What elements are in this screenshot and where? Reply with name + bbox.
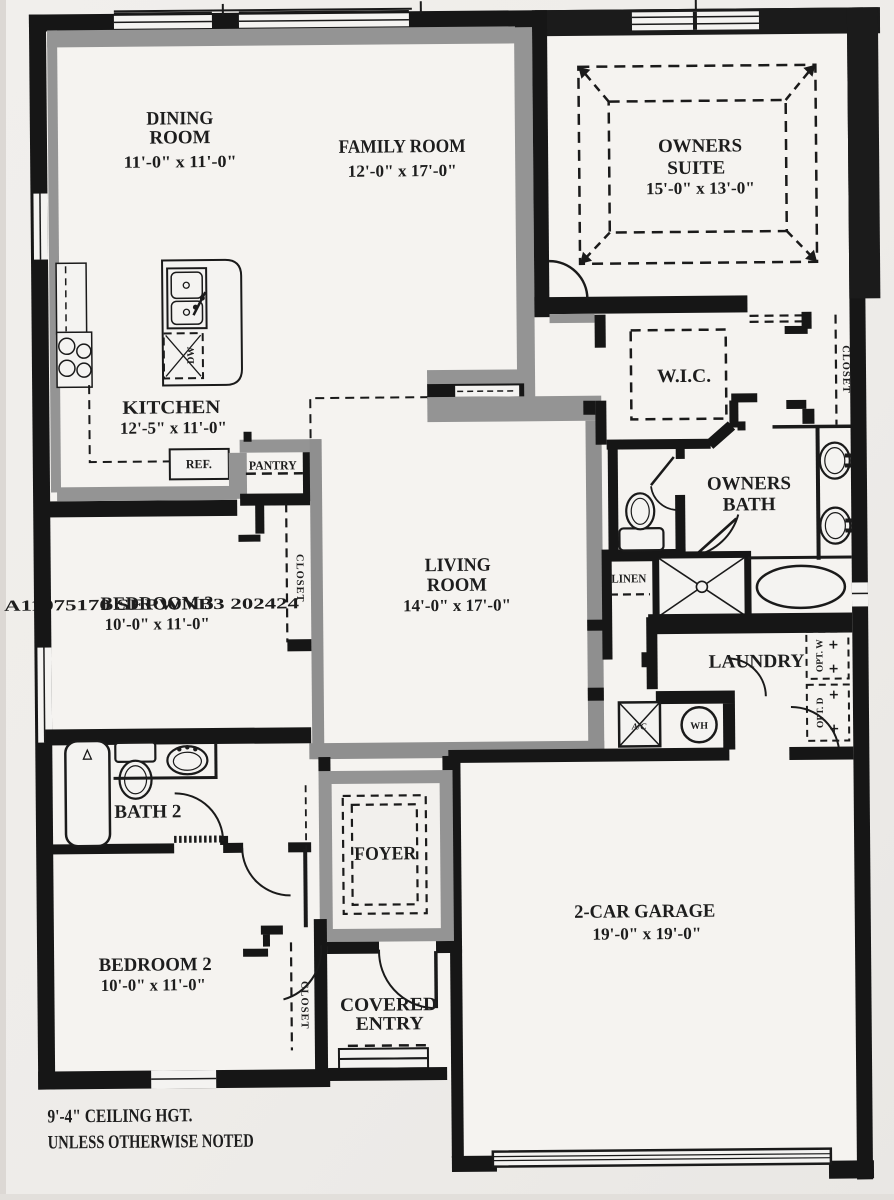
- svg-text:CLOSET: CLOSET: [294, 554, 305, 603]
- svg-text:SUITE: SUITE: [667, 158, 725, 180]
- svg-text:12'-0" x 17'-0": 12'-0" x 17'-0": [348, 161, 457, 181]
- svg-text:19'-0" x 19'-0": 19'-0" x 19'-0": [592, 924, 701, 944]
- svg-text:2-CAR GARAGE: 2-CAR GARAGE: [574, 901, 715, 923]
- svg-text:REF.: REF.: [186, 457, 212, 471]
- svg-text:W.I.C.: W.I.C.: [657, 366, 711, 387]
- svg-text:LIVING: LIVING: [425, 555, 491, 577]
- svg-text:UNLESS OTHERWISE NOTED: UNLESS OTHERWISE NOTED: [48, 1131, 254, 1154]
- svg-text:PANTRY: PANTRY: [249, 458, 297, 472]
- svg-text:OPT. W: OPT. W: [815, 639, 825, 672]
- svg-text:ROOM: ROOM: [427, 575, 487, 597]
- svg-text:BATH 2: BATH 2: [114, 801, 181, 823]
- svg-text:KITCHEN: KITCHEN: [122, 397, 220, 419]
- svg-text:CLOSET: CLOSET: [840, 345, 851, 394]
- svg-text:FOYER: FOYER: [354, 843, 416, 865]
- svg-text:BATH: BATH: [723, 494, 776, 515]
- svg-text:OPT. D: OPT. D: [816, 697, 826, 728]
- svg-text:CLOSET: CLOSET: [298, 981, 309, 1030]
- svg-text:BEDROOM 3: BEDROOM 3: [100, 593, 213, 615]
- svg-text:BEDROOM 2: BEDROOM 2: [99, 954, 212, 976]
- svg-text:11'-0" x 11'-0": 11'-0" x 11'-0": [124, 152, 237, 172]
- svg-text:A/C: A/C: [631, 721, 648, 731]
- svg-text:LINEN: LINEN: [611, 571, 646, 585]
- svg-text:LAUNDRY: LAUNDRY: [708, 651, 804, 673]
- svg-text:9'-4" CEILING HGT.: 9'-4" CEILING HGT.: [47, 1105, 192, 1127]
- svg-text:ENTRY: ENTRY: [356, 1013, 424, 1035]
- svg-text:12'-5" x 11'-0": 12'-5" x 11'-0": [120, 418, 227, 438]
- svg-text:OWNERS: OWNERS: [658, 135, 742, 157]
- svg-text:15'-0" x 13'-0": 15'-0" x 13'-0": [646, 178, 755, 198]
- svg-text:10'-0" x 11'-0": 10'-0" x 11'-0": [101, 975, 206, 995]
- svg-text:WH: WH: [690, 721, 708, 732]
- svg-text:FAMILY ROOM: FAMILY ROOM: [338, 136, 465, 158]
- svg-text:ROOM: ROOM: [149, 127, 210, 149]
- svg-text:DW: DW: [186, 347, 197, 364]
- svg-text:10'-0" x 11'-0": 10'-0" x 11'-0": [105, 614, 210, 634]
- svg-text:14'-0" x 17'-0": 14'-0" x 17'-0": [403, 595, 511, 615]
- svg-text:OWNERS: OWNERS: [707, 473, 791, 495]
